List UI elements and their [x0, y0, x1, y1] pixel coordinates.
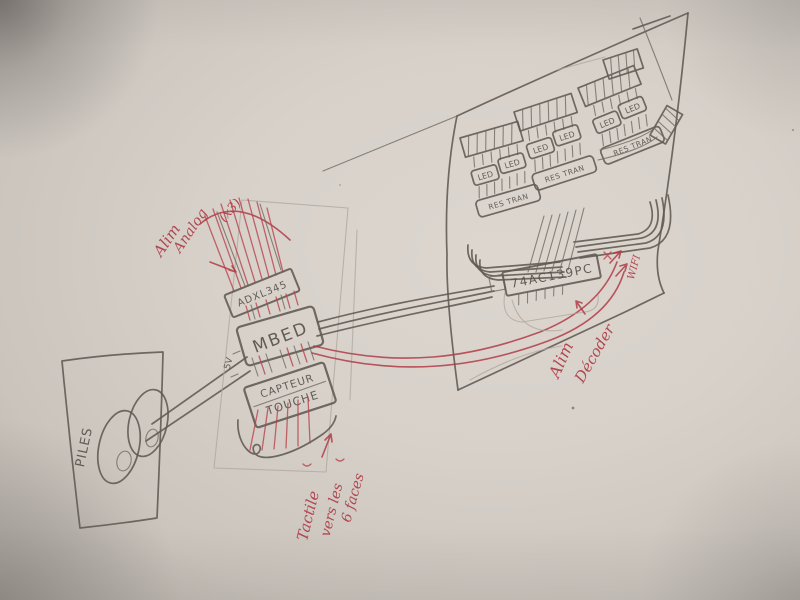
accelerometer-box: ADXL345 [224, 268, 300, 317]
battery-cell-icon [122, 386, 174, 461]
touch-sensor-box: CAPTEUR TOUCHE [244, 362, 337, 428]
wifi-label: WIFI [626, 253, 643, 281]
wifi-arrow [616, 264, 627, 276]
red-x-mark [604, 252, 611, 259]
annotation-tactile: Tactile vers les 6 faces [293, 434, 367, 543]
photographed-paper-sketch: LED LED RES TRAN PILES ADXL345 [0, 0, 800, 600]
face-module-2 [511, 93, 597, 191]
battery-box: PILES [62, 352, 174, 528]
alim-decoder-line2: Décoder [570, 321, 618, 387]
mbed-board-wires-dark [317, 286, 494, 336]
face-module-3 [575, 65, 665, 165]
mbed-box: MBED [236, 306, 324, 367]
supply-label: 5V [223, 356, 236, 371]
analog-wire-bundle [200, 198, 290, 291]
battery-label: PILES [73, 426, 96, 469]
annotation-alim-analog: Alim Analog (x3) [149, 196, 245, 272]
battery-cell-icon [91, 406, 147, 487]
sketch-svg: LED LED RES TRAN PILES ADXL345 [0, 0, 800, 600]
